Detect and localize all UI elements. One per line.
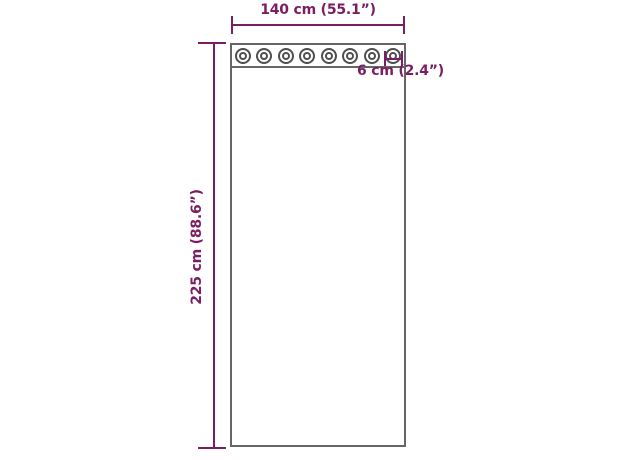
- grommet-icon: [321, 48, 337, 64]
- grommet-inner-ring: [325, 52, 333, 60]
- height-dimension-label: 225 cm (88.6”): [189, 189, 205, 305]
- width-dimension-line: [231, 24, 405, 26]
- grommet-icon: [364, 48, 380, 64]
- grommet-inner-ring: [368, 52, 376, 60]
- grommet-icon: [299, 48, 315, 64]
- grommet-dimension-label: 6 cm (2.4”): [357, 63, 444, 79]
- grommet-icon: [256, 48, 272, 64]
- grommet-inner-ring: [282, 52, 290, 60]
- width-dimension-tick-left: [231, 16, 233, 34]
- width-dimension-tick-right: [403, 16, 405, 34]
- grommet-icon: [278, 48, 294, 64]
- height-dimension-cap-top: [198, 42, 226, 44]
- grommet-inner-ring: [346, 52, 354, 60]
- curtain-dimension-diagram: 140 cm (55.1”) 225 cm (88.6”) 6 cm (2.4”…: [0, 0, 624, 460]
- grommet-icon: [385, 48, 401, 64]
- grommet-inner-ring: [260, 52, 268, 60]
- grommet-icon: [235, 48, 251, 64]
- grommet-inner-ring: [239, 52, 247, 60]
- grommet-inner-ring: [303, 52, 311, 60]
- grommet-icon: [342, 48, 358, 64]
- height-dimension-cap-bottom: [198, 447, 226, 449]
- width-dimension-label: 140 cm (55.1”): [231, 2, 405, 18]
- height-dimension-line: [213, 43, 215, 449]
- curtain-panel: [230, 43, 406, 447]
